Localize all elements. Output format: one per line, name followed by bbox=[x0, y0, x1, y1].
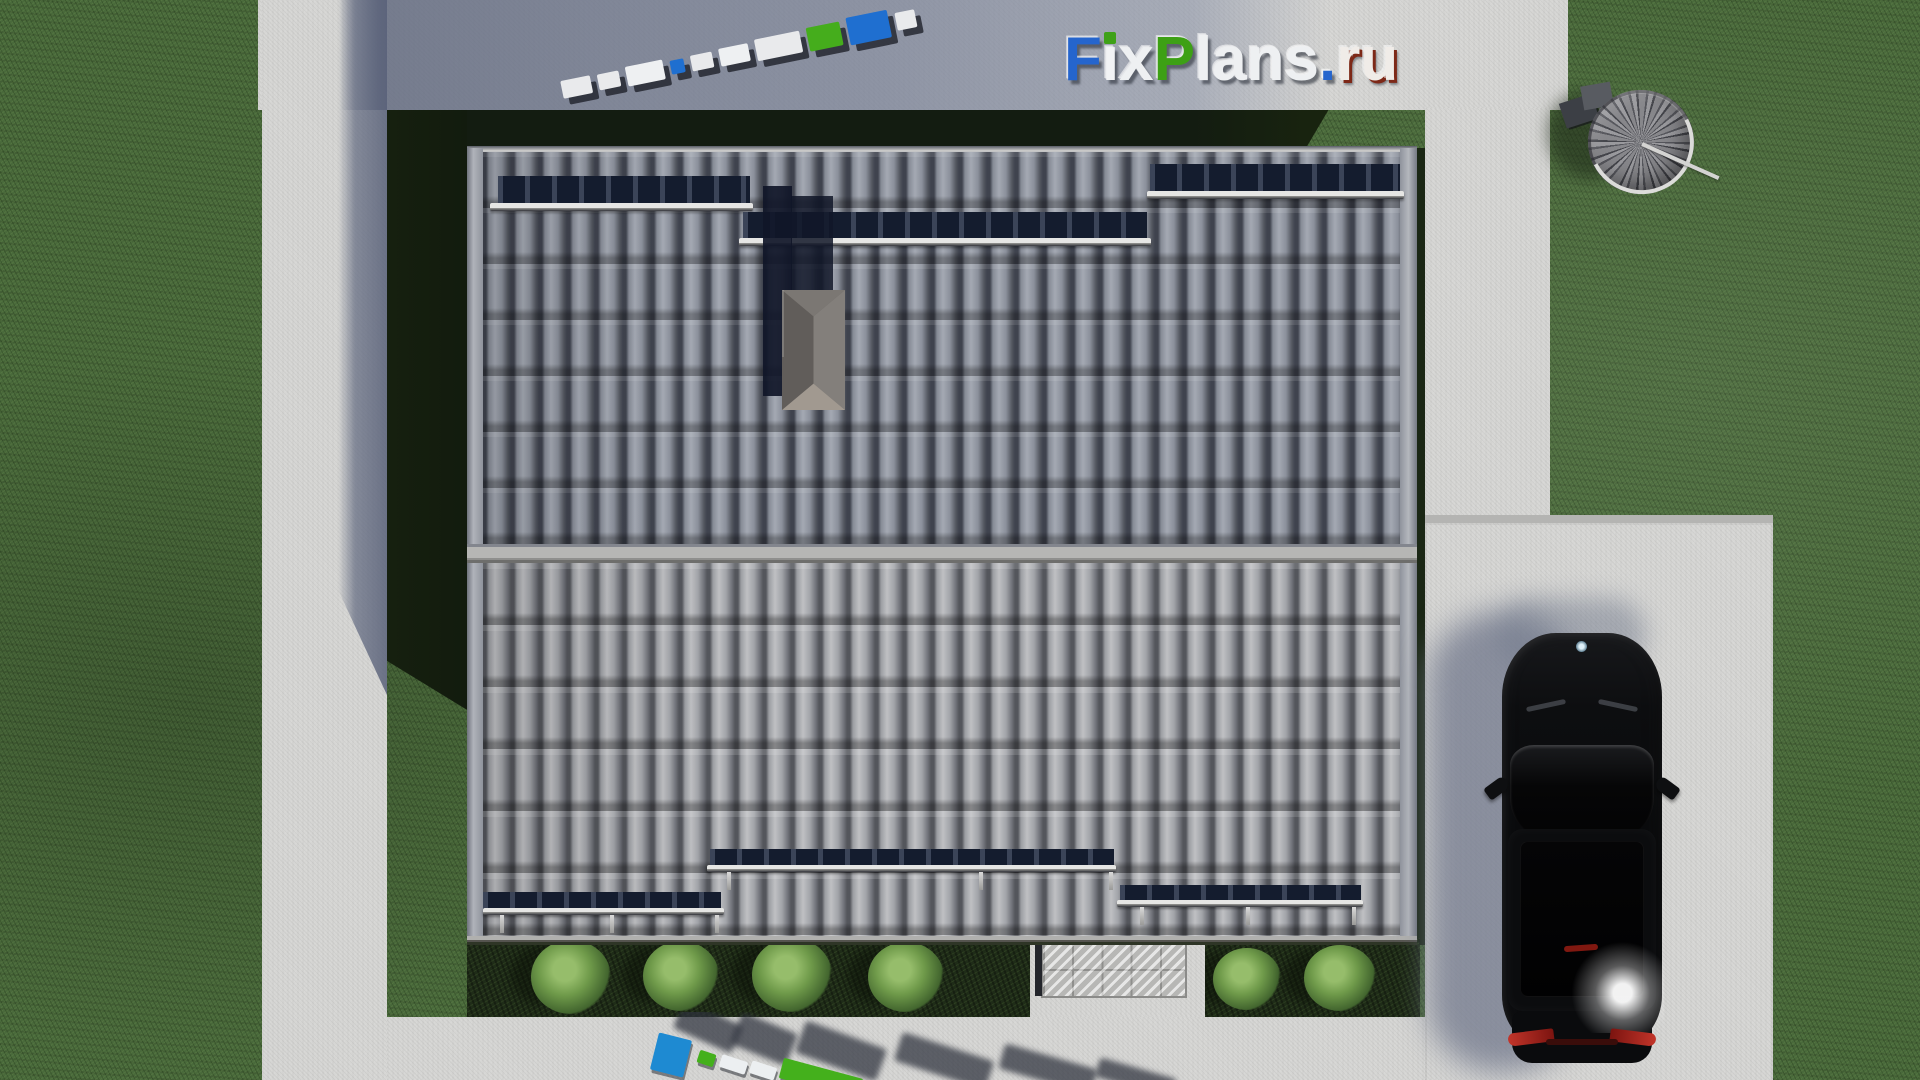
aerial-render-scene: FıxPlans.ru bbox=[0, 0, 1920, 1080]
logo3d-block bbox=[690, 51, 715, 71]
roof-south-slope-tiles bbox=[483, 563, 1400, 938]
hood-vent bbox=[1526, 699, 1566, 712]
snow-guard-bar-upper-right bbox=[1147, 191, 1404, 199]
watermark-letter: l bbox=[1195, 24, 1212, 95]
bush bbox=[643, 941, 719, 1011]
watermark-letter: a bbox=[1212, 24, 1246, 95]
gutter-bracket bbox=[500, 915, 504, 933]
logo3d-block bbox=[650, 1032, 692, 1077]
path-east bbox=[1425, 108, 1550, 515]
watermark-letter: F bbox=[1064, 24, 1102, 95]
chimney-cap bbox=[782, 290, 845, 410]
car-emblem bbox=[1576, 641, 1587, 652]
bush bbox=[868, 942, 944, 1012]
snow-guard-bar-upper-left bbox=[490, 203, 753, 211]
black-sedan-top-view bbox=[1502, 633, 1662, 1047]
gutter-bracket bbox=[979, 872, 983, 890]
logo3d-block bbox=[806, 21, 844, 51]
logo3d-top bbox=[548, 0, 968, 130]
logo3d-letter-shadow bbox=[998, 1043, 1097, 1080]
snow-guard-shadow-band-lower-middle bbox=[710, 849, 1114, 866]
logo3d-block bbox=[625, 59, 666, 86]
downspout-shadow bbox=[1035, 938, 1042, 996]
car-windshield bbox=[1510, 745, 1654, 837]
spiral-staircase bbox=[1552, 78, 1722, 203]
logo3d-block bbox=[560, 75, 593, 99]
watermark-letter: u bbox=[1360, 24, 1398, 95]
roof-ridge bbox=[467, 544, 1417, 563]
logo3d-bottom bbox=[648, 1012, 1208, 1080]
gutter-bracket bbox=[1246, 907, 1250, 925]
snow-guard-shadow-band-upper-left bbox=[498, 176, 750, 204]
house-shadow-on-west-path bbox=[338, 0, 387, 702]
logo3d-top-row bbox=[559, 4, 918, 103]
gutter-bracket bbox=[610, 915, 614, 933]
bush bbox=[531, 940, 611, 1014]
logo3d-letter-shadow bbox=[1095, 1057, 1177, 1080]
gutter-bracket bbox=[1140, 907, 1144, 925]
entry-canopy-glass-grid bbox=[1041, 936, 1187, 998]
fixplans-watermark: FıxPlans.ru bbox=[1064, 24, 1398, 95]
gutter-bracket bbox=[727, 872, 731, 890]
bush bbox=[1213, 948, 1281, 1011]
watermark-letter: s bbox=[1285, 24, 1319, 95]
snow-guard-shadow-band-lower-left bbox=[483, 892, 721, 909]
house-shadow-on-grass-west bbox=[387, 104, 467, 716]
logo3d-letter-shadow bbox=[894, 1032, 995, 1080]
i-dot bbox=[1104, 32, 1116, 44]
logo3d-block bbox=[669, 58, 686, 75]
snow-guard-shadow-band-lower-right bbox=[1120, 885, 1361, 901]
snow-guard-bar-lower-right bbox=[1117, 900, 1363, 907]
roof-south-eave bbox=[467, 936, 1417, 945]
chimney-ridge-line bbox=[782, 290, 784, 357]
snow-guard-bar-lower-middle bbox=[707, 865, 1116, 872]
logo3d-block bbox=[718, 43, 751, 67]
logo3d-block bbox=[597, 70, 622, 90]
hood-vent bbox=[1598, 699, 1638, 712]
logo3d-block bbox=[696, 1050, 716, 1068]
watermark-letter: r bbox=[1336, 24, 1360, 95]
watermark-letter: n bbox=[1247, 24, 1285, 95]
watermark-letter: ı bbox=[1102, 24, 1119, 95]
bush bbox=[752, 938, 832, 1012]
watermark-letter: P bbox=[1154, 24, 1195, 95]
logo3d-block bbox=[749, 1060, 778, 1080]
gutter-bracket bbox=[1352, 907, 1356, 925]
watermark-letter: x bbox=[1119, 24, 1153, 95]
logo3d-block bbox=[894, 9, 917, 31]
snow-guard-bar-lower-left bbox=[483, 908, 724, 915]
logo3d-block bbox=[845, 10, 892, 46]
taillight-strip bbox=[1546, 1039, 1618, 1045]
snow-guard-shadow-band-upper-right bbox=[1150, 164, 1400, 192]
gutter-bracket bbox=[1109, 872, 1113, 890]
chimney-shadow bbox=[791, 196, 833, 294]
gutter-bracket bbox=[715, 915, 719, 933]
watermark-letter: . bbox=[1319, 24, 1336, 95]
bush bbox=[1304, 945, 1376, 1011]
logo3d-block bbox=[719, 1054, 749, 1075]
logo3d-block bbox=[754, 31, 803, 62]
